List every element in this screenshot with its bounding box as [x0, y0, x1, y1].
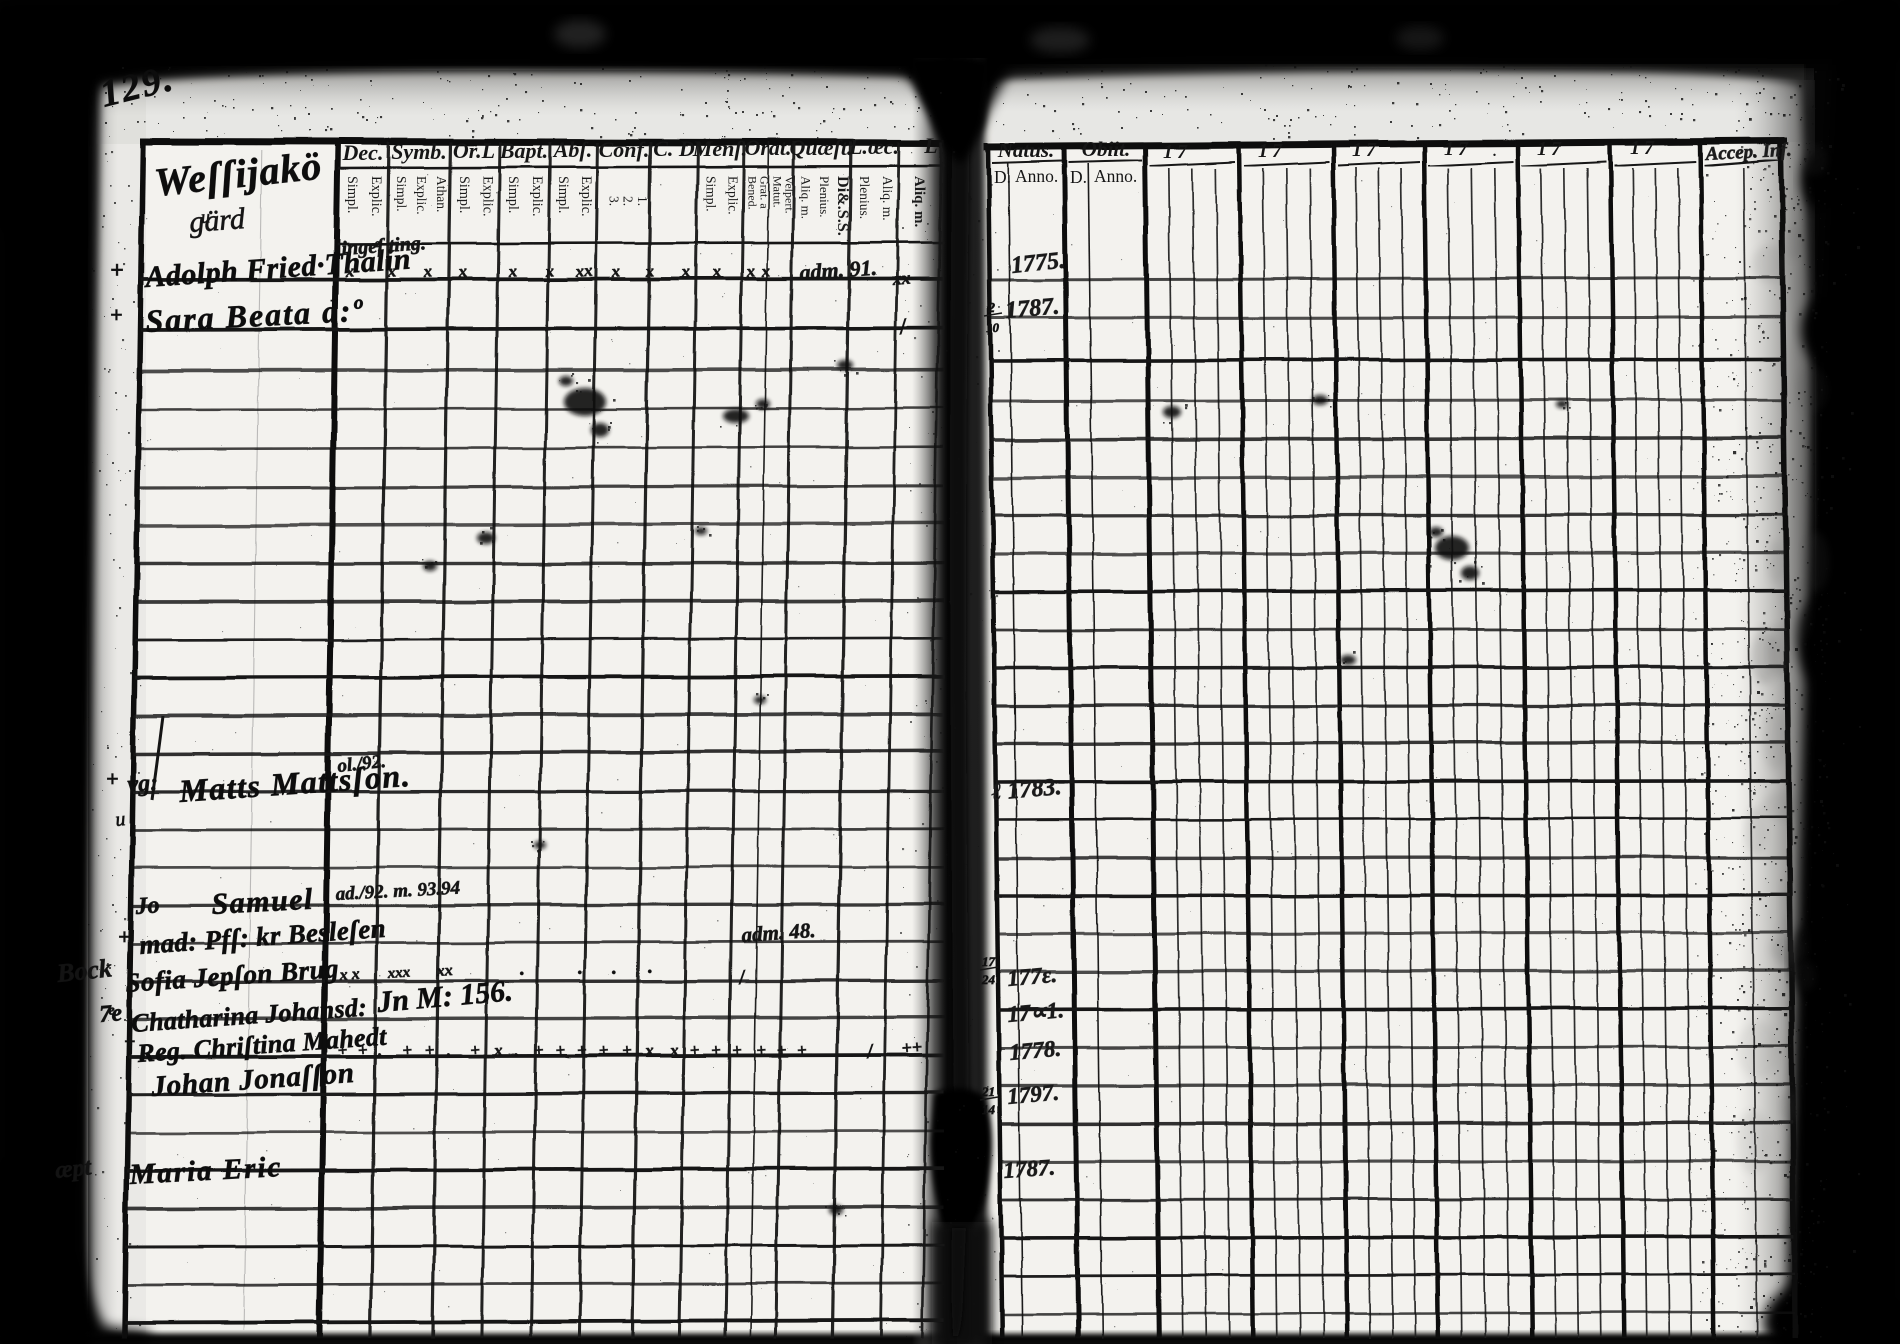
svg-text:Explic.: Explic. [368, 176, 384, 217]
svg-text:Abſ.: Abſ. [552, 137, 593, 162]
svg-text:Natus.: Natus. [997, 138, 1055, 162]
svg-text:Di&.S.S.: Di&.S.S. [834, 176, 852, 236]
svg-text:Symb.: Symb. [391, 139, 447, 164]
svg-text:Simpl.: Simpl. [704, 176, 719, 212]
svg-text:2.: 2. [621, 196, 636, 206]
svg-text:xx: xx [435, 962, 453, 980]
svg-text:xx: xx [574, 261, 594, 282]
svg-text:+: + [357, 1040, 368, 1060]
svg-text:+: + [402, 1040, 413, 1060]
svg-text:L: L [923, 133, 937, 158]
svg-text:Aliq. m.: Aliq. m. [880, 176, 895, 221]
svg-text:æpt: æpt [54, 1154, 94, 1184]
svg-text:1787.: 1787. [1003, 1154, 1056, 1183]
svg-text:x: x [644, 1040, 655, 1060]
svg-text:+: + [710, 1040, 721, 1060]
svg-text:17: 17 [1630, 137, 1658, 159]
svg-text:Explic.: Explic. [414, 176, 429, 215]
svg-text:Dec.: Dec. [342, 140, 384, 165]
svg-text:L.œc.: L.œc. [848, 134, 899, 159]
svg-text:vg:: vg: [127, 770, 159, 798]
svg-text:xxx: xxx [386, 964, 411, 982]
svg-text:Or.L: Or.L [453, 138, 495, 163]
svg-text:Plenius.: Plenius. [817, 176, 832, 218]
svg-text:7ͤe: 7ͤe [98, 1000, 123, 1028]
svg-text:Simpl.: Simpl. [394, 176, 409, 212]
svg-text:17: 17 [1258, 140, 1286, 162]
svg-text:++: ++ [901, 1037, 923, 1058]
svg-text:10: 10 [986, 320, 1000, 335]
svg-text:Explic.: Explic. [578, 176, 594, 217]
svg-text:.: . [648, 956, 653, 978]
svg-text:Anno.: Anno. [1015, 166, 1058, 186]
svg-text:.: . [1492, 139, 1497, 161]
svg-text:Explic.: Explic. [480, 176, 496, 217]
svg-text:1797.: 1797. [1006, 1080, 1060, 1109]
svg-text:Jo: Jo [134, 892, 161, 920]
svg-text:+: + [118, 924, 131, 949]
svg-text:+: + [555, 1040, 566, 1060]
svg-text:Orat.: Orat. [744, 135, 791, 160]
svg-text:.: . [612, 957, 617, 979]
svg-text:Aliq. m.: Aliq. m. [799, 176, 814, 219]
svg-text:D.: D. [1070, 167, 1087, 187]
svg-text:Anno.: Anno. [1094, 166, 1137, 186]
svg-text:+: + [424, 1040, 435, 1060]
svg-text:24: 24 [981, 972, 996, 987]
svg-text:Simpl.: Simpl. [505, 176, 521, 213]
svg-text:+: + [731, 1040, 742, 1060]
svg-text:1778.: 1778. [1008, 1036, 1062, 1065]
svg-text:+: + [776, 1040, 787, 1060]
svg-text:17: 17 [1537, 138, 1565, 160]
svg-text:.: . [578, 957, 583, 979]
svg-text:Matut.: Matut. [771, 176, 785, 208]
svg-text:+: + [106, 766, 119, 791]
svg-text:1.: 1. [635, 196, 650, 206]
svg-text:Samuel: Samuel [211, 883, 315, 921]
svg-text:+: + [598, 1040, 609, 1060]
svg-text:Simpl.: Simpl. [456, 176, 472, 213]
svg-text:Simpl.: Simpl. [555, 176, 571, 213]
svg-text:Simpl.: Simpl. [344, 176, 360, 213]
svg-text:Athan.: Athan. [434, 176, 449, 212]
svg-text:xx: xx [891, 267, 912, 289]
svg-text:x x: x x [338, 966, 360, 984]
svg-text:+: + [124, 1031, 135, 1053]
svg-text:3.: 3. [606, 196, 621, 206]
svg-text:+: + [796, 1040, 807, 1060]
svg-text:Explic.: Explic. [726, 176, 741, 215]
svg-text:14: 14 [982, 1102, 996, 1117]
svg-text:Aliq. m.: Aliq. m. [911, 176, 927, 228]
svg-text:+: + [576, 1040, 587, 1060]
svg-text:Explic.: Explic. [529, 176, 545, 217]
svg-text:17: 17 [982, 954, 996, 969]
svg-text:1787.: 1787. [1004, 293, 1060, 324]
svg-text:x: x [492, 1040, 503, 1060]
svg-text:Bened.: Bened. [746, 176, 760, 210]
svg-text:Menſ.: Menſ. [692, 136, 747, 161]
svg-text:Bapt.: Bapt. [499, 138, 548, 163]
svg-text:+: + [110, 302, 123, 327]
svg-text:.: . [520, 958, 525, 980]
svg-text:C. D: C. D [653, 136, 695, 161]
svg-text:Plenius.: Plenius. [857, 176, 872, 219]
svg-text:17: 17 [1352, 139, 1380, 161]
svg-text:+: + [621, 1040, 632, 1060]
svg-text:+: + [533, 1040, 544, 1060]
svg-text:17: 17 [1444, 138, 1472, 160]
svg-text:177ε.: 177ε. [1006, 962, 1058, 991]
svg-text:+: + [756, 1040, 767, 1060]
svg-text:Obiit.: Obiit. [1082, 137, 1130, 161]
svg-text:x: x [668, 1040, 679, 1060]
svg-text:+: + [110, 258, 124, 284]
svg-text:D.: D. [994, 167, 1011, 187]
svg-text:Bock: Bock [55, 953, 114, 988]
svg-text:gͧärd: gͧärd [188, 202, 247, 239]
svg-text:+: + [470, 1040, 481, 1060]
svg-text:17: 17 [1163, 141, 1191, 163]
svg-text:17∝1.: 17∝1. [1006, 997, 1065, 1027]
svg-text:Conf.: Conf. [599, 137, 650, 162]
svg-text:+: + [689, 1040, 700, 1060]
svg-text:Quæſt.: Quæſt. [790, 135, 853, 160]
